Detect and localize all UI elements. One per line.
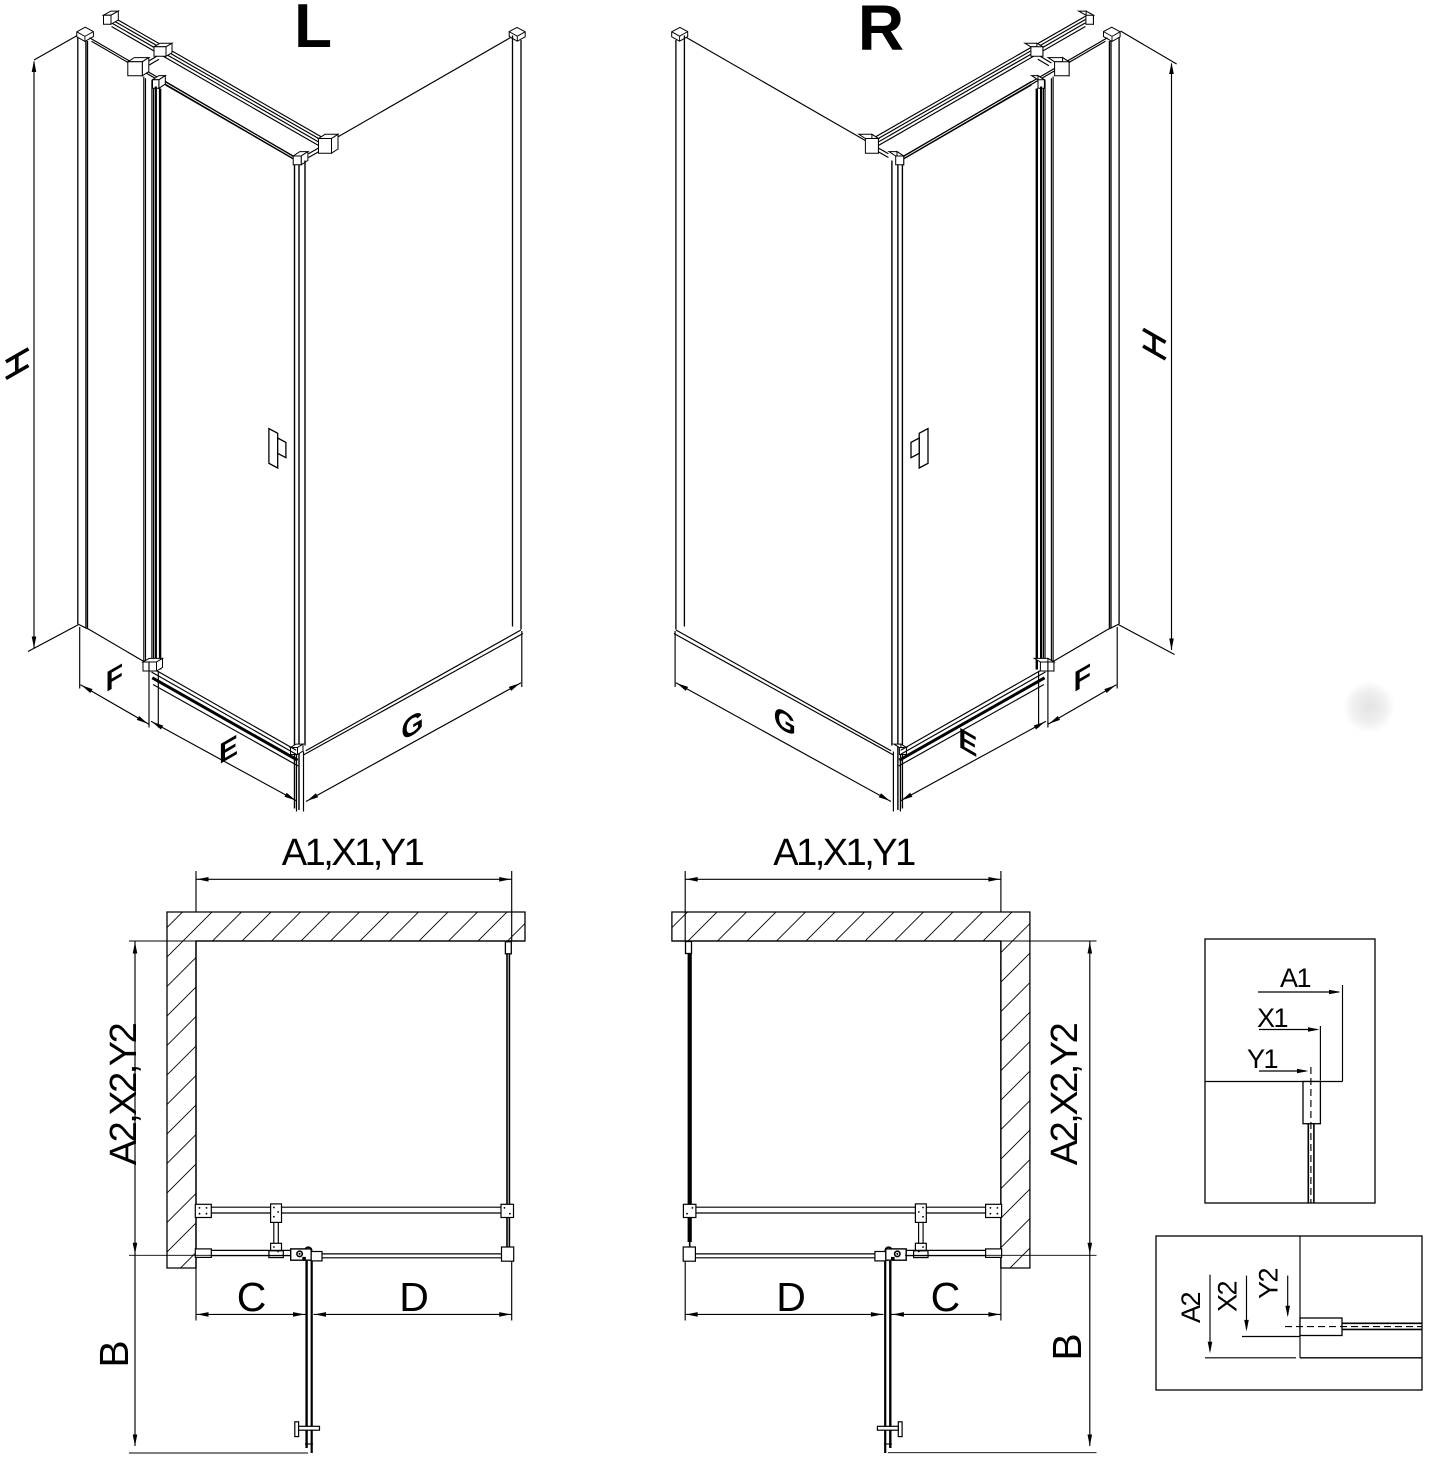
svg-text:Y1: Y1 bbox=[1247, 1044, 1278, 1074]
svg-text:A1,X1,Y1: A1,X1,Y1 bbox=[773, 832, 915, 874]
svg-text:Y2: Y2 bbox=[1254, 1269, 1284, 1300]
svg-text:A2,X2,Y2: A2,X2,Y2 bbox=[1044, 1023, 1086, 1165]
svg-text:A1: A1 bbox=[1280, 963, 1311, 993]
svg-text:C: C bbox=[931, 1274, 961, 1320]
svg-text:A1,X1,Y1: A1,X1,Y1 bbox=[282, 832, 424, 874]
svg-text:D: D bbox=[399, 1274, 429, 1320]
svg-text:C: C bbox=[237, 1274, 267, 1320]
svg-text:A2,X2,Y2: A2,X2,Y2 bbox=[103, 1023, 145, 1165]
svg-text:X1: X1 bbox=[1257, 1003, 1288, 1033]
svg-text:D: D bbox=[776, 1274, 806, 1320]
svg-text:B: B bbox=[91, 1340, 137, 1367]
svg-text:X2: X2 bbox=[1213, 1282, 1243, 1313]
svg-text:R: R bbox=[858, 0, 904, 64]
svg-text:B: B bbox=[1044, 1333, 1090, 1360]
svg-text:A2: A2 bbox=[1176, 1293, 1206, 1324]
svg-text:L: L bbox=[294, 0, 332, 61]
